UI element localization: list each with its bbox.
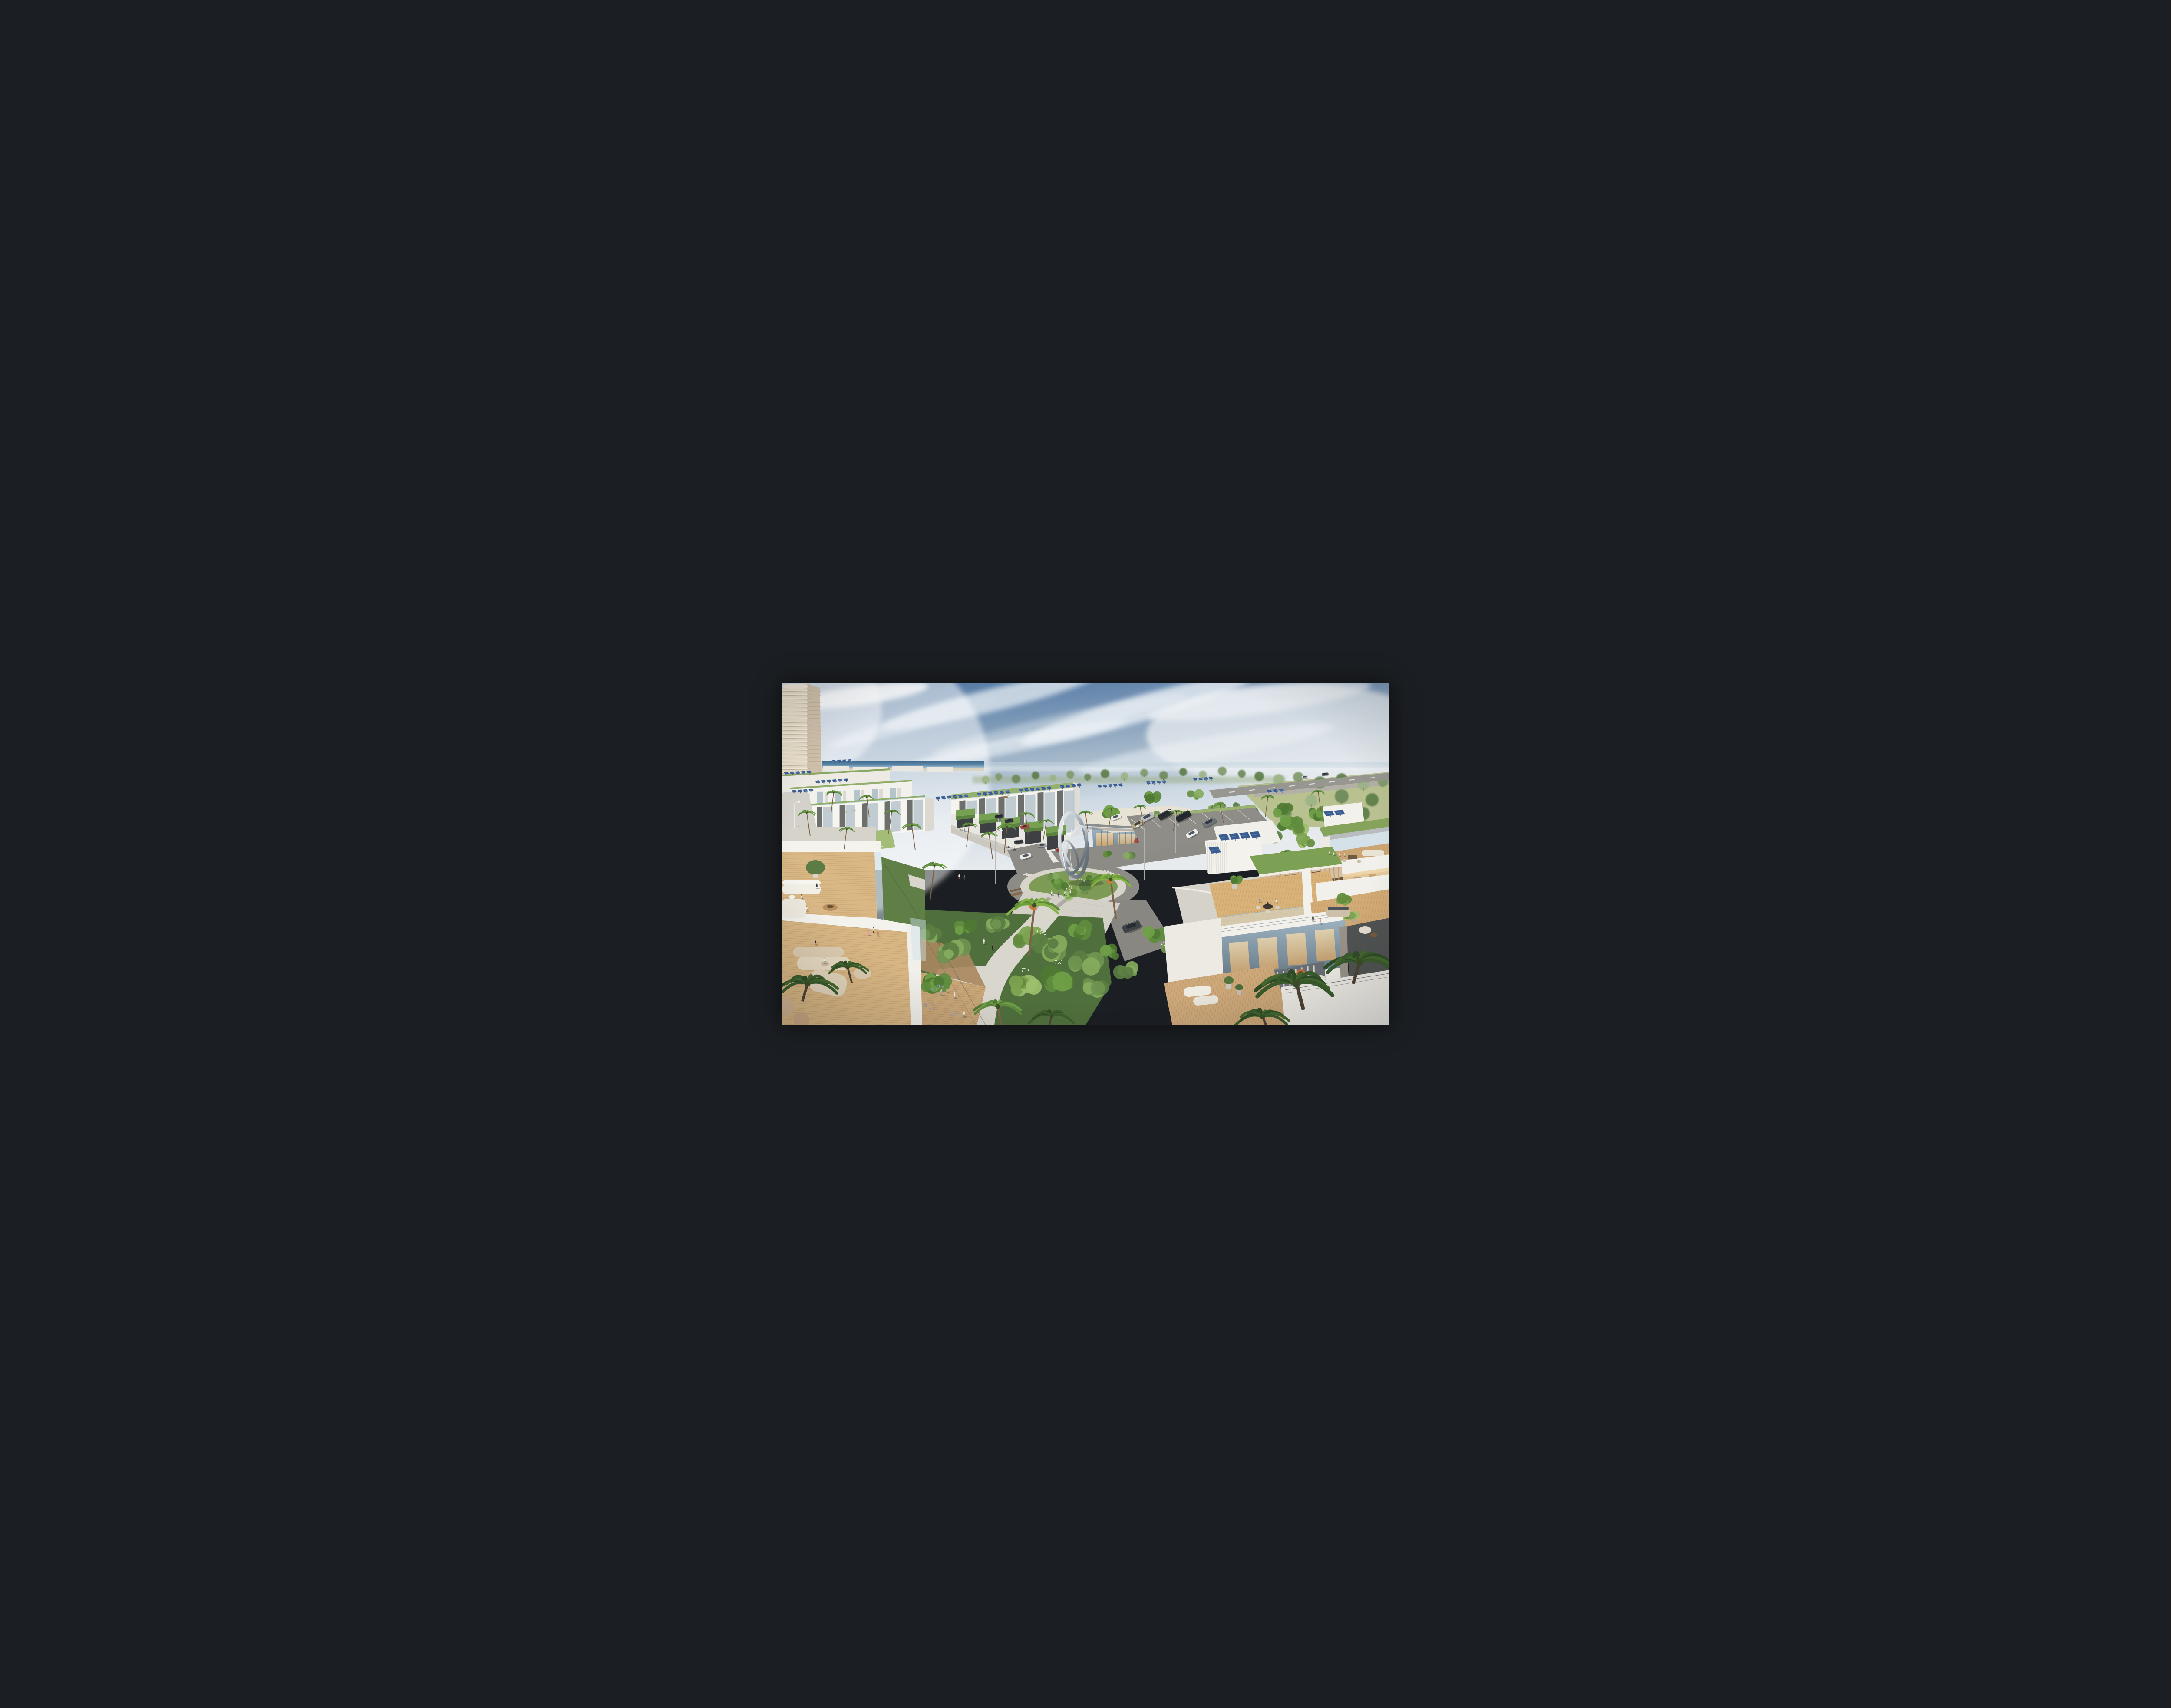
villa-community-rendering	[782, 683, 1389, 1025]
vignette	[782, 683, 1389, 1025]
render-canvas	[782, 683, 1389, 1025]
